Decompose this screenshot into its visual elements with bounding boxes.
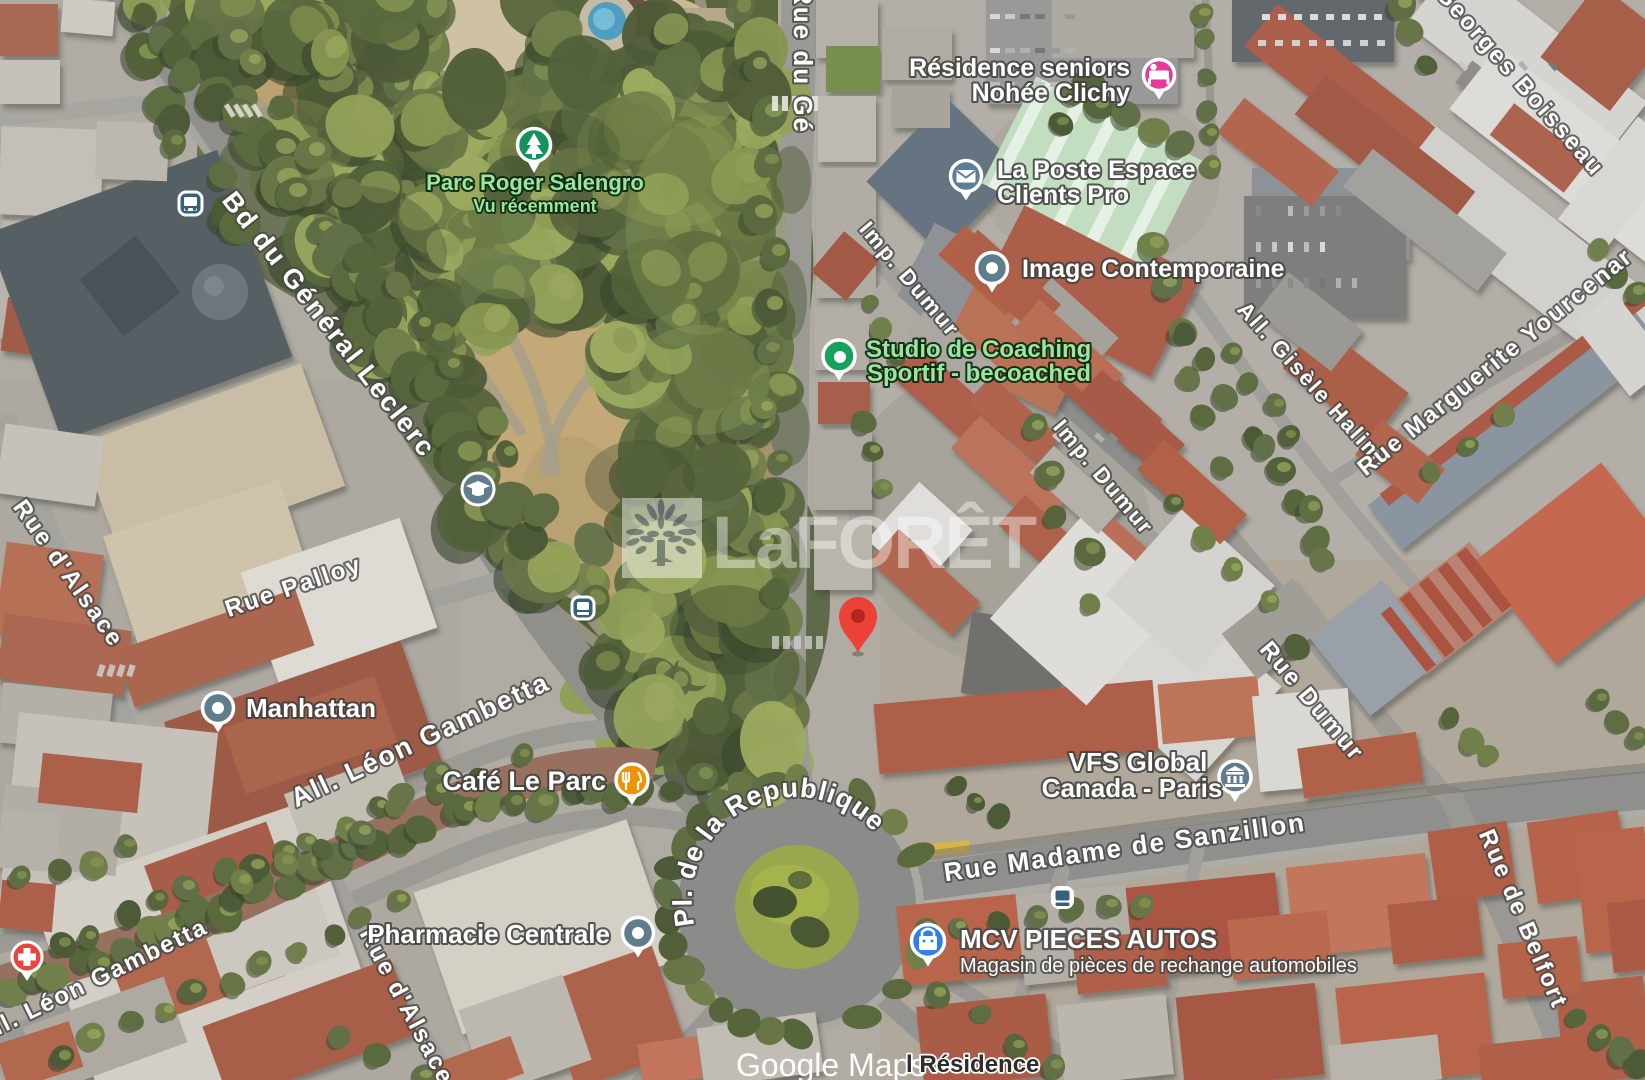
svg-text:Canada - Paris: Canada - Paris (1042, 773, 1223, 803)
svg-text:Studio de Coaching: Studio de Coaching (866, 336, 1091, 363)
svg-text:Clients Pro: Clients Pro (997, 181, 1129, 209)
svg-text:Magasin de pièces de rechange: Magasin de pièces de rechange automobile… (960, 955, 1357, 977)
svg-text:Google Maps: Google Maps (736, 1047, 926, 1080)
svg-text:Café Le Parc: Café Le Parc (442, 766, 606, 796)
svg-text:Pharmacie Centrale: Pharmacie Centrale (367, 919, 610, 949)
svg-text:MCV PIECES AUTOS: MCV PIECES AUTOS (960, 924, 1217, 954)
svg-text:Parc Roger Salengro: Parc Roger Salengro (426, 170, 644, 195)
svg-text:LaFORÊT: LaFORÊT (712, 501, 1037, 584)
svg-text:Rue du Gé: Rue du Gé (788, 0, 818, 134)
svg-text:Manhattan: Manhattan (246, 693, 376, 723)
svg-text:Vu récemment: Vu récemment (473, 196, 596, 216)
svg-text:Nohée Clichy: Nohée Clichy (972, 79, 1130, 107)
svg-text:Sportif - becoached: Sportif - becoached (867, 360, 1091, 387)
svg-text:l Résidence: l Résidence (906, 1051, 1039, 1078)
svg-text:Résidence seniors: Résidence seniors (909, 54, 1130, 82)
svg-text:La Poste Espace: La Poste Espace (997, 156, 1196, 184)
svg-text:Image Contemporaine: Image Contemporaine (1022, 255, 1285, 283)
